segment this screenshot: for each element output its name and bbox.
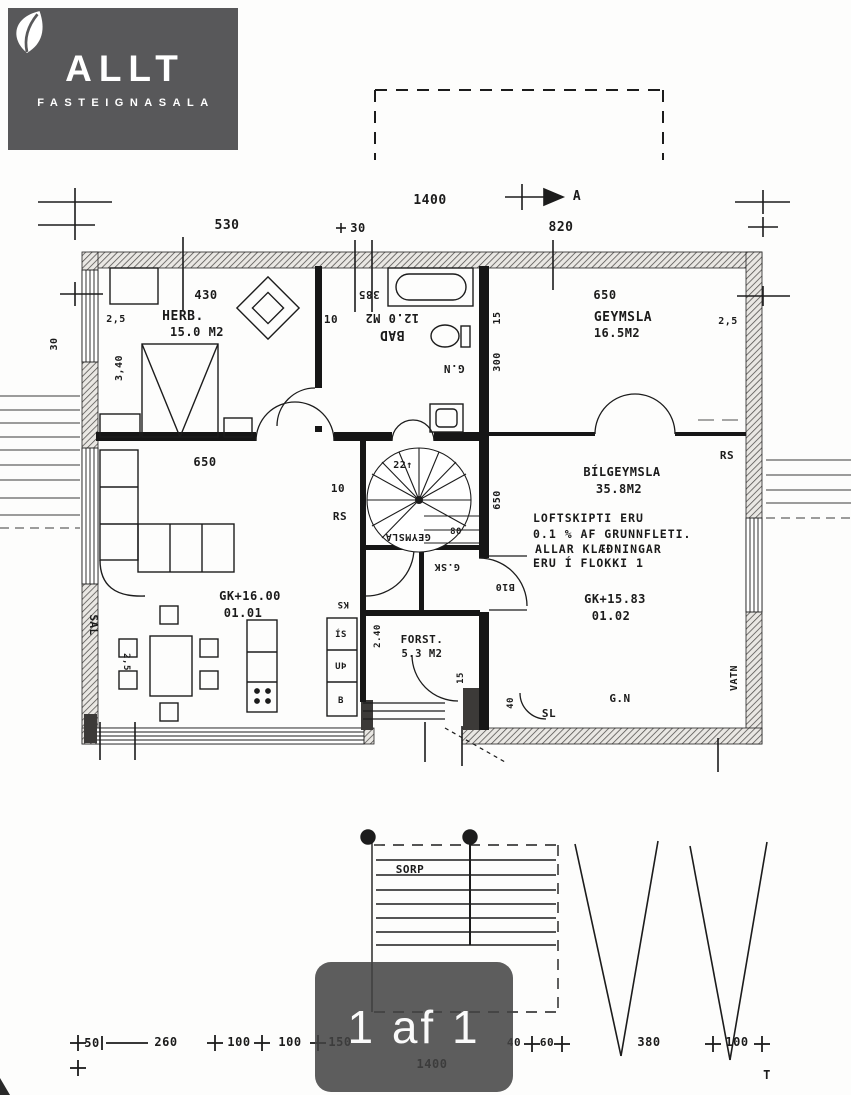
chair xyxy=(237,277,299,339)
level-garage: GK+15.83 xyxy=(584,592,646,606)
dim-2-5-sal: 2,5 xyxy=(121,653,131,671)
dim-530: 530 xyxy=(215,218,240,233)
ks-label: KS xyxy=(337,599,349,609)
note-line3: ALLAR KLÆÐNINGAR xyxy=(535,542,662,556)
dim-b50: 50 xyxy=(84,1036,99,1050)
compass-label: A xyxy=(573,189,581,204)
room-bilgeymsla: BÍLGEYMSLA xyxy=(583,464,661,479)
floorplan-drawing: 530 30 1400 820 A HERB. 15.0 M2 430 2,5 … xyxy=(0,0,851,1095)
dim-300: 300 xyxy=(492,352,503,372)
sink xyxy=(430,404,463,432)
roof-dashed-outline xyxy=(375,90,663,160)
dim-430: 430 xyxy=(194,288,217,302)
room-forst-area: 5.3 M2 xyxy=(402,648,443,660)
scan-edge-artifact xyxy=(0,1078,10,1095)
stair-count: 22↑ xyxy=(393,460,413,471)
kitchen-counter xyxy=(247,620,277,712)
dim-30: 30 xyxy=(350,221,365,235)
room-bad: BAD xyxy=(380,327,405,342)
dim-10-stair: 10 xyxy=(331,482,345,495)
dim-2-5-right: 2,5 xyxy=(718,316,738,327)
level-garage-id: 01.02 xyxy=(592,609,631,623)
level-living: GK+16.00 xyxy=(219,589,281,603)
room-sal: SAL xyxy=(87,614,100,635)
dim-80: 80 xyxy=(450,527,462,537)
note-line1: LOFTSKIPTI ERU xyxy=(533,511,644,525)
dim-650-living: 650 xyxy=(193,455,216,469)
brand-tagline: FASTEIGNASALA xyxy=(37,97,214,109)
is-label: ÍS xyxy=(335,628,347,640)
dim-3-40: 3,40 xyxy=(114,355,125,381)
sofa xyxy=(100,450,138,560)
dim-b260: 260 xyxy=(154,1035,177,1049)
room-herb-area: 15.0 M2 xyxy=(170,325,224,339)
dim-15-bath: 15 xyxy=(492,311,503,324)
rs-stair: RS xyxy=(333,510,347,523)
room-geymsla-inner: GEYMSLA xyxy=(385,531,431,542)
floorplan-viewer: 530 30 1400 820 A HERB. 15.0 M2 430 2,5 … xyxy=(0,0,851,1095)
level-living-id: 01.01 xyxy=(224,606,263,620)
room-gsk: G.SK xyxy=(434,561,460,572)
b10-label: B10 xyxy=(495,581,515,592)
dim-1400-top: 1400 xyxy=(413,193,446,208)
agency-logo: ALLT FASTEIGNASALA xyxy=(8,8,238,150)
page-indicator-label: 1 af 1 xyxy=(347,1000,480,1054)
note-line2: 0.1 % AF GRUNNFLETI. xyxy=(533,527,691,541)
up-label: UÞ xyxy=(335,662,347,672)
bed xyxy=(142,344,218,437)
bath-fixtures xyxy=(388,268,473,432)
b-label: B xyxy=(338,696,344,706)
sl-label: SL xyxy=(542,707,556,720)
dim-2-40: 2.40 xyxy=(373,624,383,648)
leaf-icon xyxy=(8,8,46,54)
room-geymsla-area: 16.5M2 xyxy=(594,326,640,340)
vatn-label: VATN xyxy=(729,665,740,691)
sorp-label: SORP xyxy=(396,863,425,876)
dim-b100a: 100 xyxy=(227,1035,250,1049)
room-bilgeymsla-area: 35.8M2 xyxy=(596,482,642,496)
gn-bath: G.N xyxy=(443,362,464,375)
dim-820: 820 xyxy=(549,220,574,235)
dim-b60: 60 xyxy=(540,1036,554,1049)
dim-b100c: 100 xyxy=(725,1035,748,1049)
dim-b380: 380 xyxy=(637,1035,660,1049)
brand-name: ALLT xyxy=(65,50,185,87)
room-geymsla: GEYMSLA xyxy=(594,310,652,325)
note-line4: ERU Í FLOKKI 1 xyxy=(533,555,644,570)
dim-385: 385 xyxy=(358,288,379,301)
rs-right: RS xyxy=(720,449,734,462)
dim-15-forst: 15 xyxy=(456,672,466,684)
page-indicator-badge: 1 af 1 xyxy=(315,962,513,1092)
tree-markers xyxy=(575,841,767,1060)
dim-650-geymsla: 650 xyxy=(593,288,616,302)
room-herb: HERB. xyxy=(162,309,204,324)
dim-10-mid: 10 xyxy=(324,313,338,326)
logo-row: ALLT xyxy=(61,50,185,87)
gn-garage: G.N xyxy=(609,692,630,705)
living-furniture xyxy=(100,450,357,721)
dim-650-garage: 650 xyxy=(492,490,503,510)
wardrobe xyxy=(110,268,158,304)
toilet xyxy=(461,326,470,347)
dim-b100b: 100 xyxy=(278,1035,301,1049)
dining-table xyxy=(150,636,192,696)
north-arrow xyxy=(505,184,563,210)
room-bad-area: 12.0 M2 xyxy=(365,311,419,325)
dim-2-5-left: 2,5 xyxy=(106,314,126,325)
room-forst: FORST. xyxy=(401,633,444,646)
dim-bT: T xyxy=(763,1068,771,1082)
dim-40-garage: 40 xyxy=(506,697,516,709)
dim-30-left: 30 xyxy=(49,337,60,350)
